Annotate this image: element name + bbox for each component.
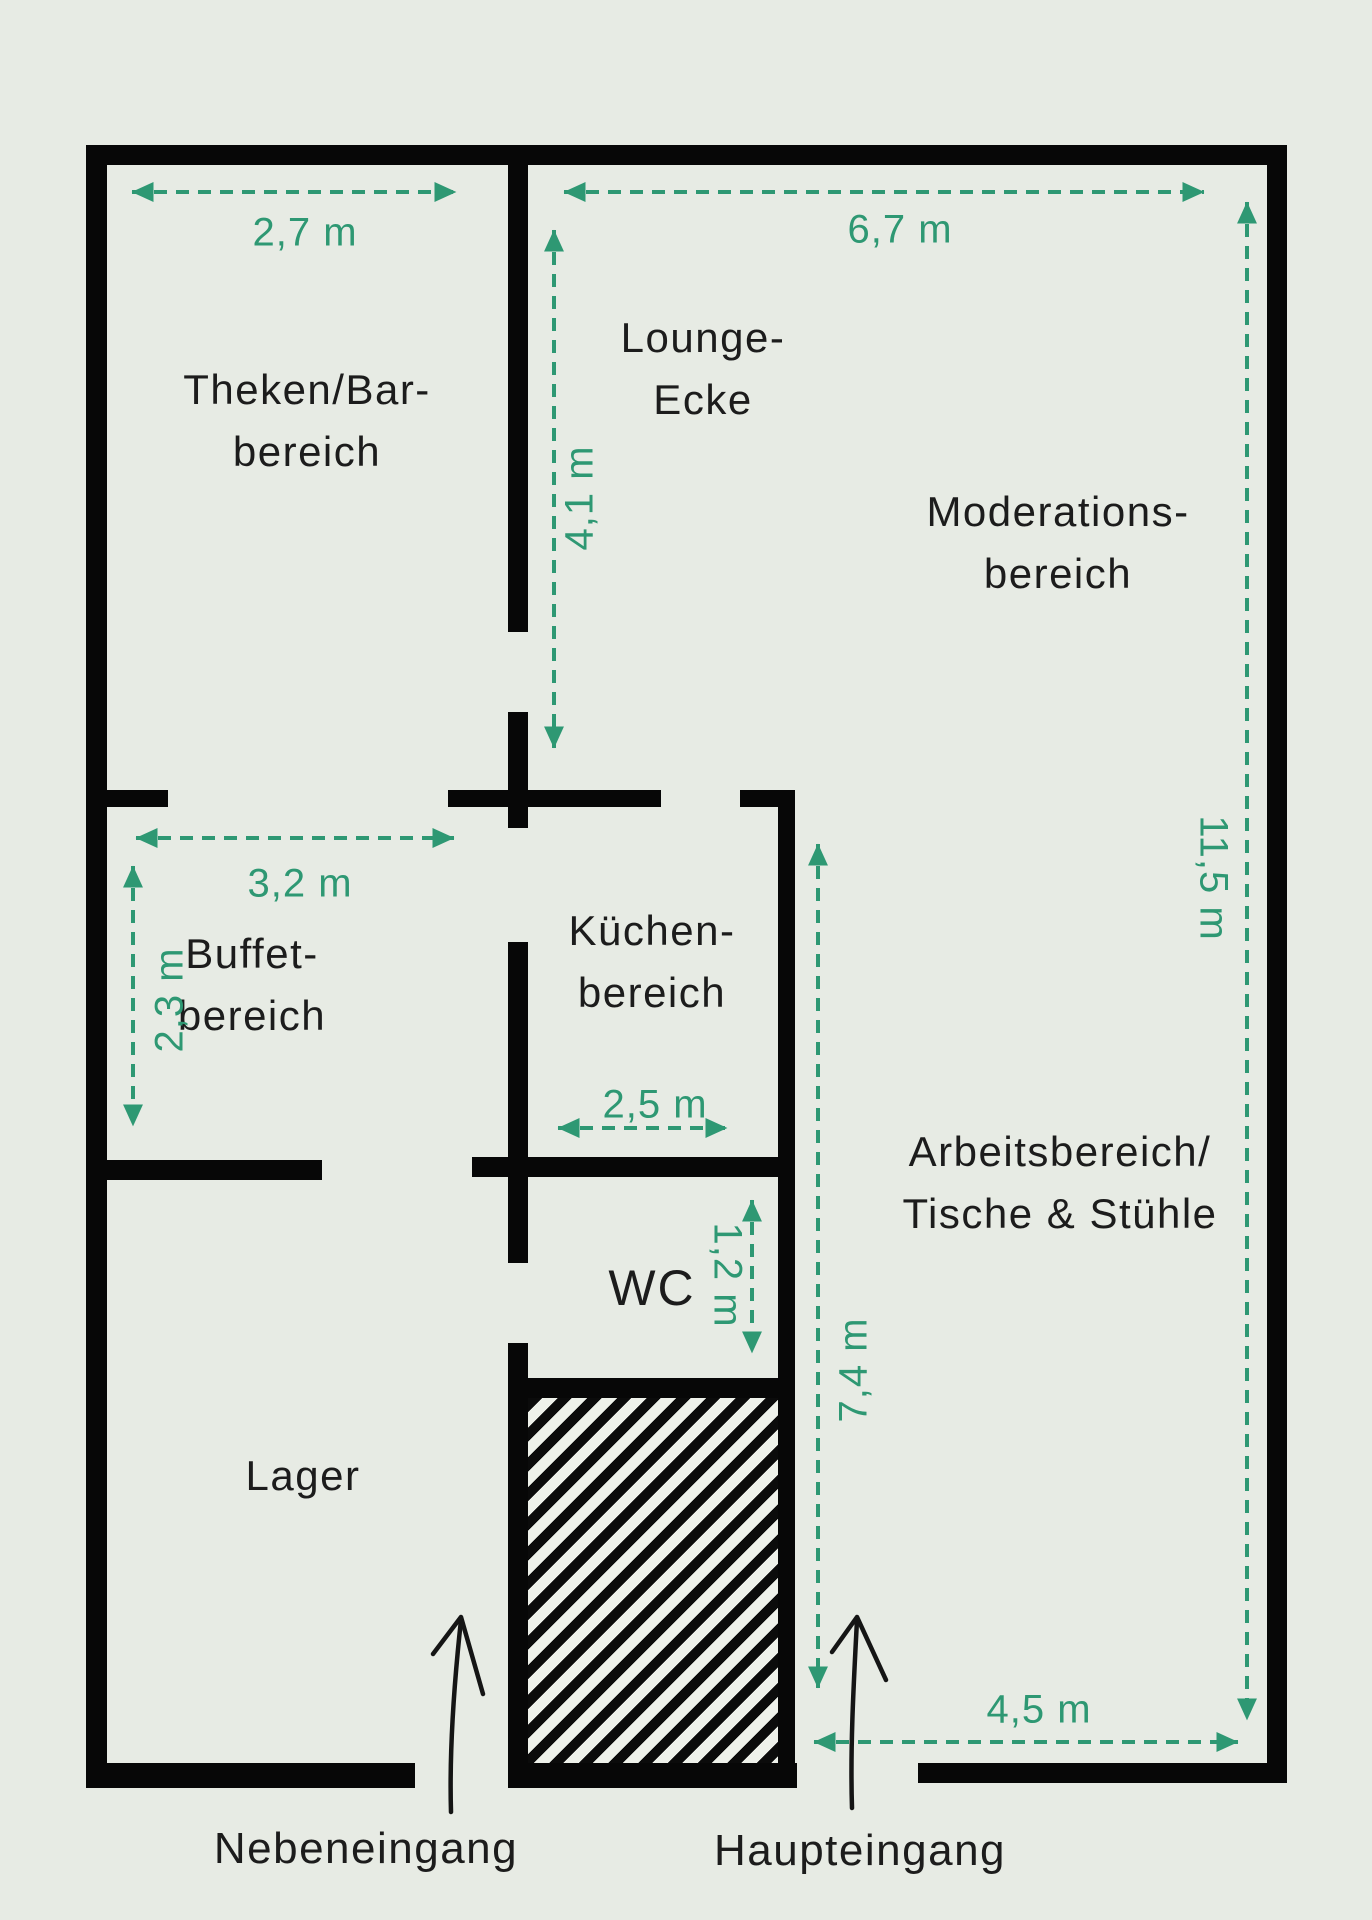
room-label-lounge-line1: Lounge- — [621, 307, 786, 369]
room-label-theken-bar-line2: bereich — [183, 421, 431, 483]
dimension-label-right-height: 11,5 m — [1191, 815, 1236, 940]
wall-kitchen-wc-divider — [472, 1157, 778, 1177]
wall-bottom-right — [918, 1763, 1287, 1783]
wall-buffet-lager-divider — [86, 1160, 322, 1180]
room-label-buffet-line1: Buffet- — [178, 923, 326, 985]
haupteingang-arrow-head — [832, 1617, 886, 1680]
room-label-moderation-line1: Moderations- — [926, 481, 1189, 543]
dimension-label-wc-height: 1,2 m — [705, 1222, 750, 1327]
wall-left — [86, 145, 107, 1788]
room-label-kueche-line1: Küchen- — [569, 900, 736, 962]
room-label-wc: WC — [608, 1257, 695, 1319]
haupteingang-arrow — [851, 1620, 857, 1808]
floor-plan: Theken/Bar- bereich Lounge- Ecke Moderat… — [0, 0, 1372, 1920]
dimension-label-arbeit-width: 4,5 m — [986, 1688, 1091, 1733]
room-label-moderation-line2: bereich — [926, 543, 1189, 605]
room-label-lounge-line2: Ecke — [621, 369, 786, 431]
wall-kitchen-top — [448, 790, 661, 807]
room-label-theken-bar-line1: Theken/Bar- — [183, 359, 431, 421]
room-label-buffet-line2: bereich — [178, 985, 326, 1047]
room-label-arbeitsbereich: Arbeitsbereich/ Tische & Stühle — [902, 1121, 1217, 1245]
wall-bottom-center — [508, 1763, 797, 1788]
wall-center-lower — [508, 1343, 528, 1788]
wall-center-upper — [508, 145, 528, 632]
wall-right — [1267, 145, 1287, 1782]
entrance-label-haupteingang: Haupteingang — [714, 1826, 1006, 1876]
nebeneingang-arrow — [451, 1620, 461, 1812]
room-label-theken-bar: Theken/Bar- bereich — [183, 359, 431, 483]
room-label-moderation: Moderations- bereich — [926, 481, 1189, 605]
wall-center-mid — [508, 712, 528, 828]
dimension-label-kueche-width: 2,5 m — [602, 1083, 707, 1128]
entrance-hatch-area — [528, 1398, 778, 1763]
room-label-lounge: Lounge- Ecke — [621, 307, 786, 431]
wall-bottom-left — [86, 1763, 415, 1788]
wall-kitchen-right — [778, 790, 795, 1785]
wall-center-kitchen — [508, 942, 528, 1263]
dimension-label-theken-width: 2,7 m — [252, 211, 357, 256]
room-label-arbeitsbereich-line2: Tische & Stühle — [902, 1183, 1217, 1245]
room-label-arbeitsbereich-line1: Arbeitsbereich/ — [902, 1121, 1217, 1183]
dimension-label-right-width: 6,7 m — [847, 208, 952, 253]
room-label-lager: Lager — [246, 1445, 361, 1507]
dimension-label-arbeit-height: 7,4 m — [832, 1317, 877, 1422]
wall-theken-buffet-stub — [86, 790, 168, 807]
wall-top — [86, 145, 1287, 165]
room-label-buffet: Buffet- bereich — [178, 923, 326, 1047]
dimension-label-buffet-height: 2,3 m — [148, 947, 193, 1052]
room-label-kueche: Küchen- bereich — [569, 900, 736, 1024]
room-label-kueche-line2: bereich — [569, 962, 736, 1024]
dimension-label-buffet-width: 3,2 m — [247, 862, 352, 907]
dimension-label-lounge-height: 4,1 m — [558, 445, 603, 550]
wall-wc-bottom — [508, 1378, 795, 1398]
entrance-label-nebeneingang: Nebeneingang — [214, 1824, 518, 1874]
